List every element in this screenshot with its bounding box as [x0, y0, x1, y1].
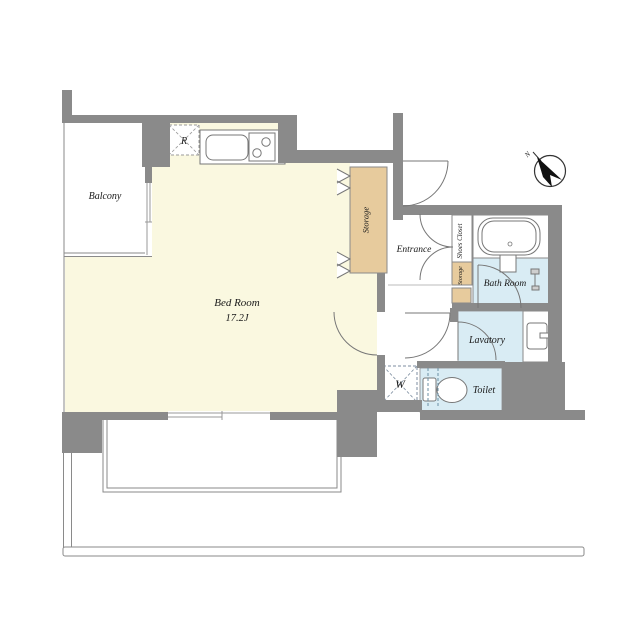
wall-bottom-left-block: [62, 412, 102, 453]
stove: [249, 133, 275, 161]
hall-door: [405, 313, 450, 358]
toilet-bowl: [437, 378, 467, 403]
wall-balcony-window-stub: [145, 167, 152, 183]
bedroom-south-window: [168, 411, 270, 420]
north-arrow: [537, 157, 562, 187]
refrigerator-symbol-label: R: [180, 136, 187, 147]
bathtub-inner: [482, 221, 536, 252]
wall-bottom-right: [420, 410, 585, 420]
entrance-door: [403, 161, 448, 206]
kitchen-sink: [206, 135, 248, 160]
wall-balcony-pillar: [142, 123, 170, 167]
bath-step: [500, 255, 516, 272]
lavatory-label: Lavatory: [468, 335, 506, 346]
wall-bath-lavatory: [452, 303, 550, 311]
wall-kitchen-step: [278, 123, 297, 163]
wall-entrance-left: [393, 113, 403, 220]
stove-burner-2: [253, 149, 261, 157]
wall-porch-bottom: [403, 205, 562, 215]
wall-hall-lavatory-stub: [450, 308, 458, 322]
bedroom-label: Bed Room: [214, 297, 260, 309]
compass: N: [523, 150, 566, 187]
balcony-sliding-window: [145, 183, 152, 255]
wall-toilet-right-block: [502, 362, 565, 412]
wall-over-storage: [297, 150, 393, 163]
toilet-label: Toilet: [473, 385, 496, 396]
lower-balcony-outline-inner: [107, 420, 337, 488]
floor-fills: [65, 123, 552, 412]
toilet-tank: [423, 378, 436, 401]
wall-below-washer: [377, 400, 422, 412]
washer-symbol-label: W: [395, 379, 406, 391]
bathroom-label: Bath Room: [484, 279, 527, 289]
stove-burner-1: [262, 138, 270, 146]
shoes-closet-label: Shoes Closet: [457, 222, 464, 258]
storage-small-box-2: [452, 288, 471, 303]
bedroom-floor: [65, 123, 377, 412]
bedroom-size-label: 17.2J: [225, 313, 249, 324]
lower-balcony-outline-outer: [103, 420, 341, 492]
storage-small-label: Storage: [458, 266, 464, 285]
storage-main-label: Storage: [361, 207, 371, 234]
wall-top: [62, 115, 297, 123]
floor-plan-canvas: N Balcony Bed Room 17.2J Storage Entranc…: [0, 0, 640, 640]
wall-bedroom-right-upper: [377, 273, 385, 312]
compass-north-label: N: [523, 150, 533, 160]
entrance-label: Entrance: [396, 245, 432, 255]
terrace-bottom-fence: [63, 547, 584, 556]
floor-plan: N Balcony Bed Room 17.2J Storage Entranc…: [0, 0, 640, 640]
balcony-label: Balcony: [89, 191, 122, 202]
washbasin-faucet: [540, 333, 549, 338]
wall-lavatory-toilet: [417, 361, 505, 368]
wall-right: [548, 215, 562, 362]
wall-bottom-mid-block: [337, 390, 377, 457]
